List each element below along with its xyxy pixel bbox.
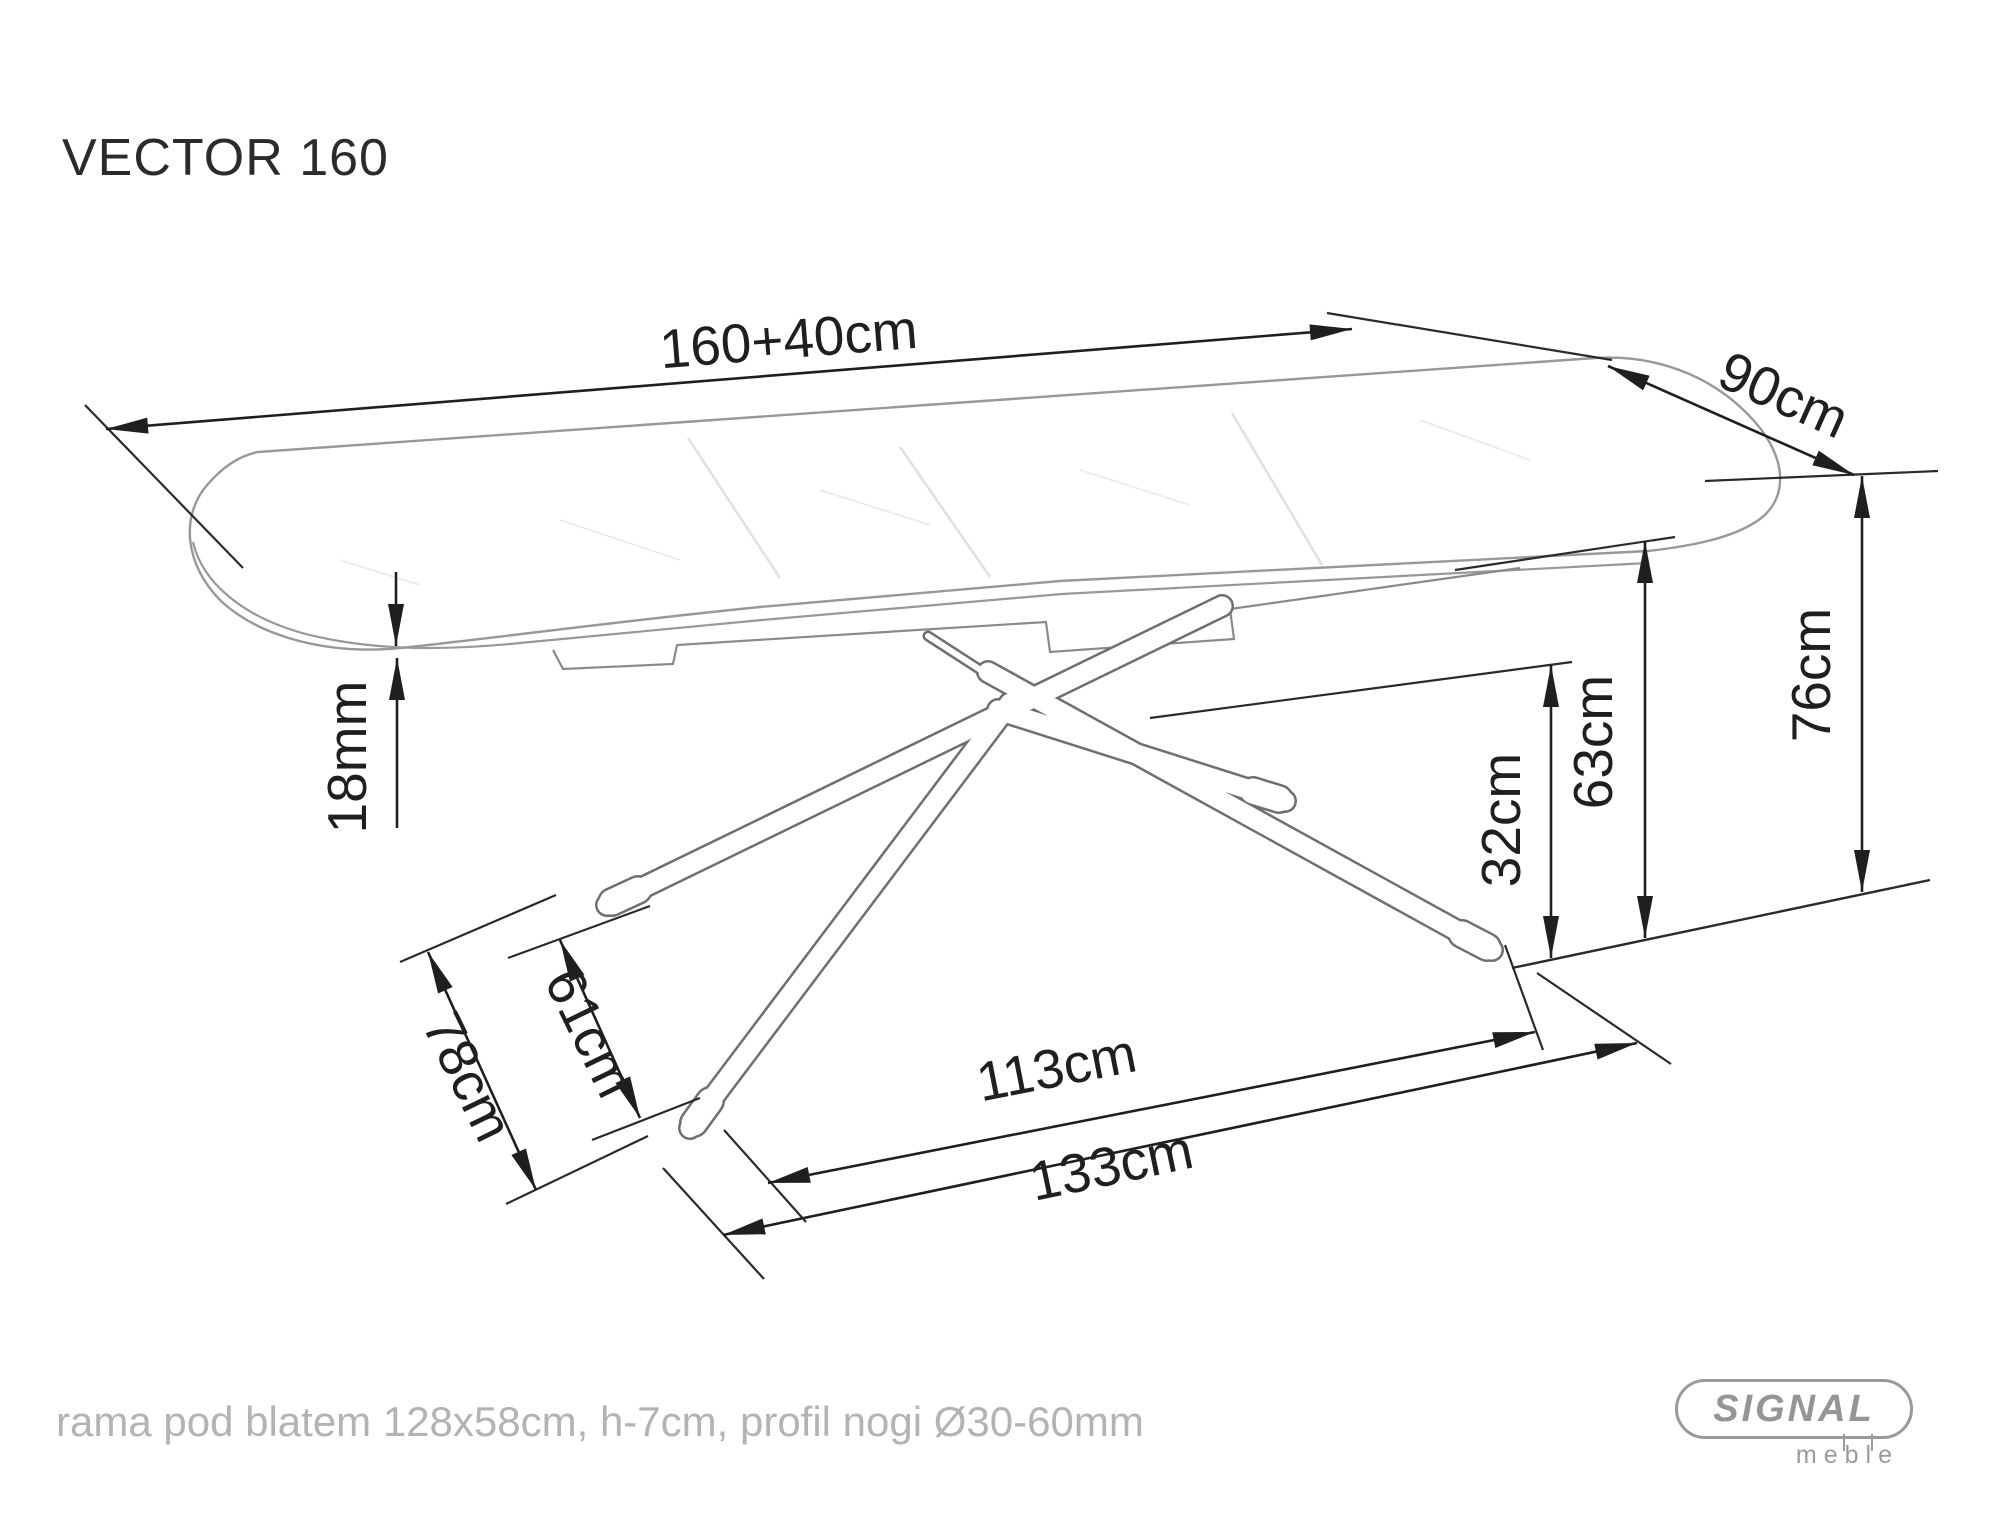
dimension-arrowhead [1492, 1032, 1535, 1048]
dimension-arrowhead [768, 1167, 811, 1183]
dim-label-foot-span-length-inner: 113cm [971, 1021, 1141, 1113]
dimension-arrowhead [1854, 476, 1870, 518]
dimension-foot-span-depth-inner: 61cm [508, 906, 700, 1140]
table-leg-fill [928, 636, 996, 680]
dimension-arrowhead [723, 1219, 766, 1235]
dimension-arrowhead [1812, 451, 1854, 475]
technical-drawing: 160+40cm90cm18mm76cm63cm32cm78cm61cm113c… [0, 0, 2000, 1530]
dim-label-hub-height: 32cm [1470, 753, 1532, 888]
dim-label-foot-span-depth-outer: 78cm [411, 1003, 526, 1151]
dimension-arrowhead [1594, 1043, 1637, 1059]
logo-brand-text: SIGNAL [1713, 1388, 1875, 1431]
dimension-arrowhead [1854, 850, 1870, 892]
table-leg-fill [998, 710, 1285, 801]
dimension-arrowhead [1543, 916, 1559, 958]
extension-line [1150, 662, 1572, 718]
extension-line [508, 906, 650, 958]
logo-stadium-outline: SIGNAL [1675, 1379, 1913, 1439]
footnote: rama pod blatem 128x58cm, h-7cm, profil … [56, 1398, 1144, 1446]
dim-label-height: 76cm [1780, 608, 1842, 743]
signal-logo: SIGNAL meble [1675, 1379, 1925, 1474]
dimension-hub-height: 32cm [1150, 662, 1572, 958]
dim-label-top-thickness: 18mm [316, 681, 378, 834]
dimension-arrowhead [1543, 665, 1559, 707]
dimension-arrowhead [511, 1148, 536, 1190]
table-leg-fill [988, 672, 1492, 950]
dimension-arrowhead [389, 658, 405, 700]
extension-line [400, 895, 556, 962]
dimension-arrowhead [428, 952, 453, 994]
dimension-arrowhead [106, 418, 149, 434]
floor-reference-line [1512, 880, 1930, 968]
dimension-arrowhead [1637, 896, 1653, 938]
dimension-arrowhead [1309, 324, 1352, 340]
extension-line [1327, 313, 1612, 360]
dim-label-foot-span-length-outer: 133cm [1024, 1118, 1198, 1213]
dim-label-underframe-height: 63cm [1562, 675, 1624, 810]
dim-label-foot-span-depth-inner: 61cm [533, 959, 648, 1107]
tabletop-surface [190, 358, 1780, 650]
logo-sub-brand-text: meble [1796, 1441, 1899, 1470]
dimension-foot-span-length-outer: 133cm [663, 973, 1671, 1279]
dimension-height: 76cm [1780, 476, 1870, 892]
extension-line [663, 1168, 764, 1279]
table-leg-fill [690, 703, 1010, 1128]
